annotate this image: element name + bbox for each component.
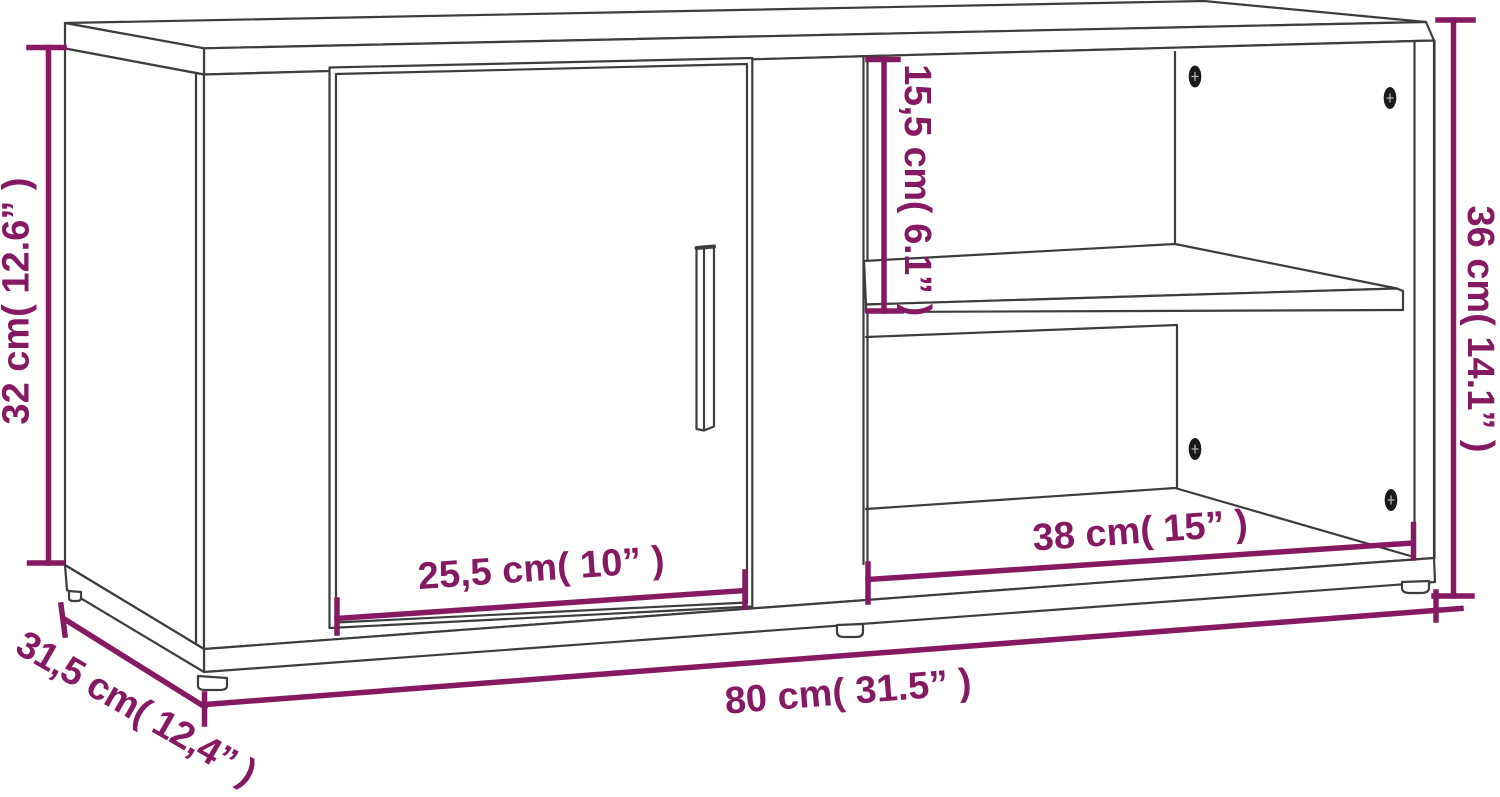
svg-text:36 cm( 14.1” ): 36 cm( 14.1” ) xyxy=(1459,205,1500,452)
svg-text:80 cm( 31.5” ): 80 cm( 31.5” ) xyxy=(723,661,973,722)
svg-text:32 cm( 12.6” ): 32 cm( 12.6” ) xyxy=(0,177,38,424)
svg-text:15,5 cm( 6.1” ): 15,5 cm( 6.1” ) xyxy=(896,64,938,316)
